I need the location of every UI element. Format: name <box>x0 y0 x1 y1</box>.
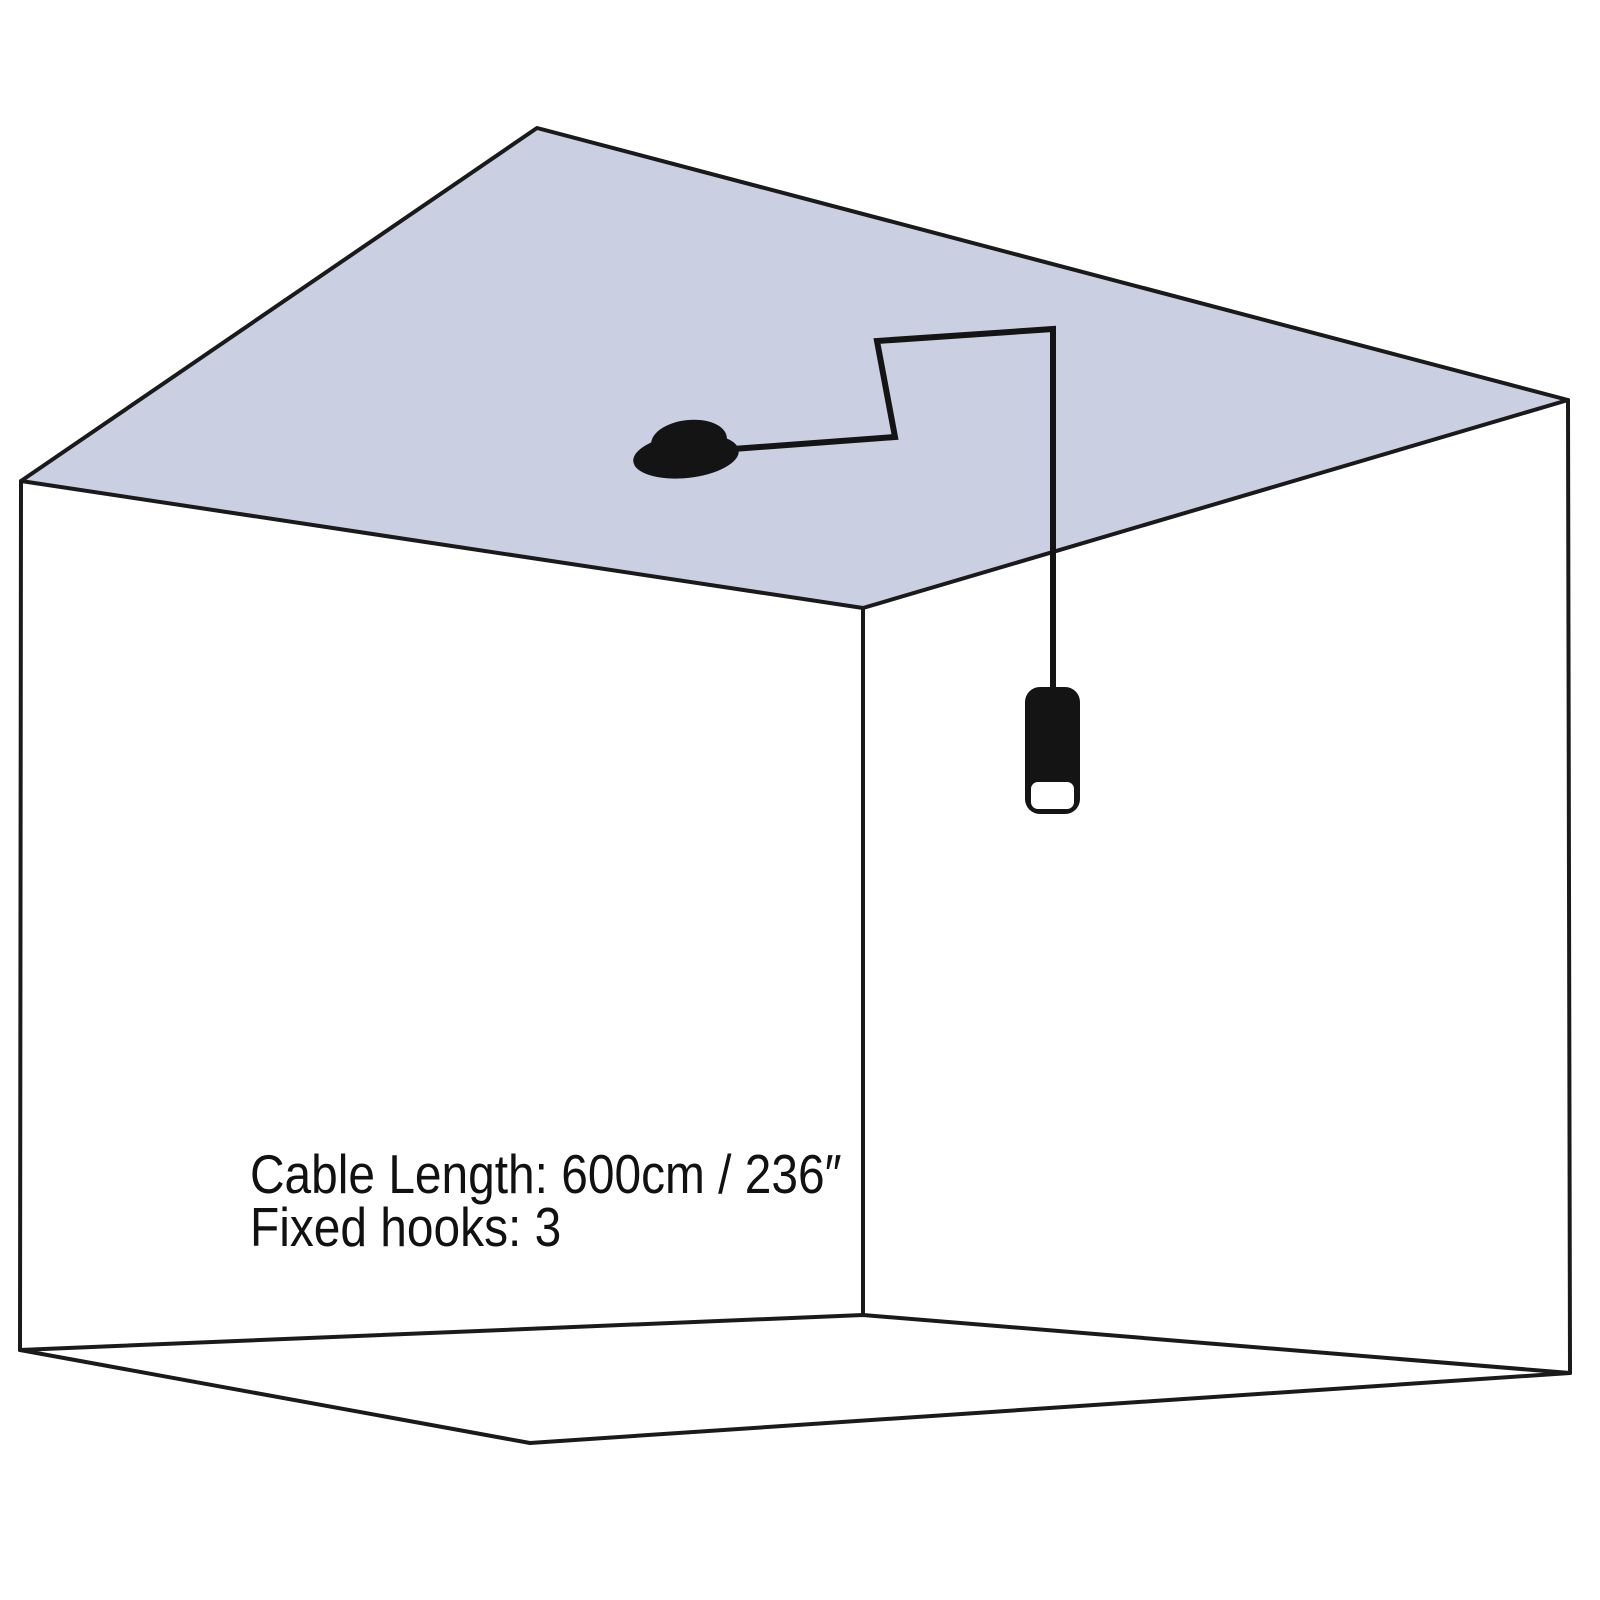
bulb-opening <box>1031 782 1074 809</box>
fixed-hooks-label: Fixed hooks: 3 <box>250 1201 842 1254</box>
floor-front-edges <box>20 1350 1570 1443</box>
annotation-block: Cable Length: 600cm / 236″ Fixed hooks: … <box>250 1148 842 1254</box>
ceiling-face <box>21 128 1568 608</box>
cable-length-label: Cable Length: 600cm / 236″ <box>250 1148 842 1201</box>
room-diagram-canvas <box>0 0 1600 1600</box>
pendant-socket <box>1025 687 1080 814</box>
left-wall-corner-edge <box>20 481 21 1350</box>
right-wall-corner-edge <box>1568 400 1570 1373</box>
floor-back-edges <box>20 1315 1570 1373</box>
pendant-light-installation-diagram: Cable Length: 600cm / 236″ Fixed hooks: … <box>0 0 1600 1600</box>
